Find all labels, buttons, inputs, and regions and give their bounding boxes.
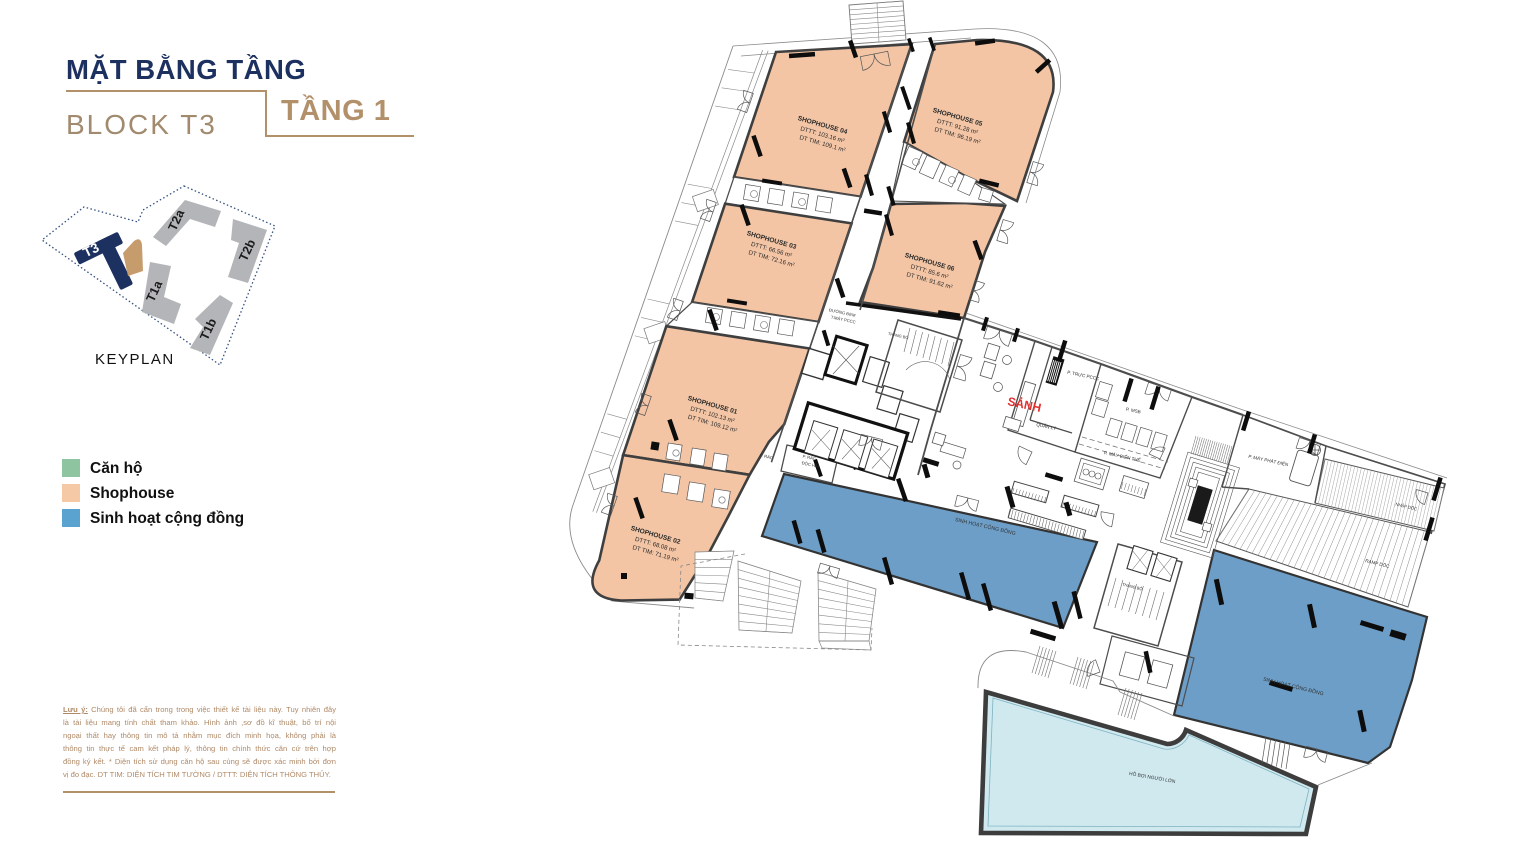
svg-text:P. MÁY BIẾN THẾ: P. MÁY BIẾN THẾ: [1104, 449, 1142, 463]
svg-text:QUẢN LÝ: QUẢN LÝ: [1036, 421, 1057, 431]
svg-text:P. RÁC: P. RÁC: [759, 453, 773, 461]
svg-text:THANG BỘ: THANG BỘ: [1122, 582, 1143, 592]
svg-text:P. TRỰC PCCC: P. TRỰC PCCC: [1067, 370, 1101, 382]
svg-text:THANG BỘ: THANG BỘ: [888, 331, 909, 340]
svg-text:P. MSB: P. MSB: [1125, 407, 1141, 415]
svg-text:P. MÁY PHÁT ĐIỆN: P. MÁY PHÁT ĐIỆN: [1248, 452, 1289, 467]
